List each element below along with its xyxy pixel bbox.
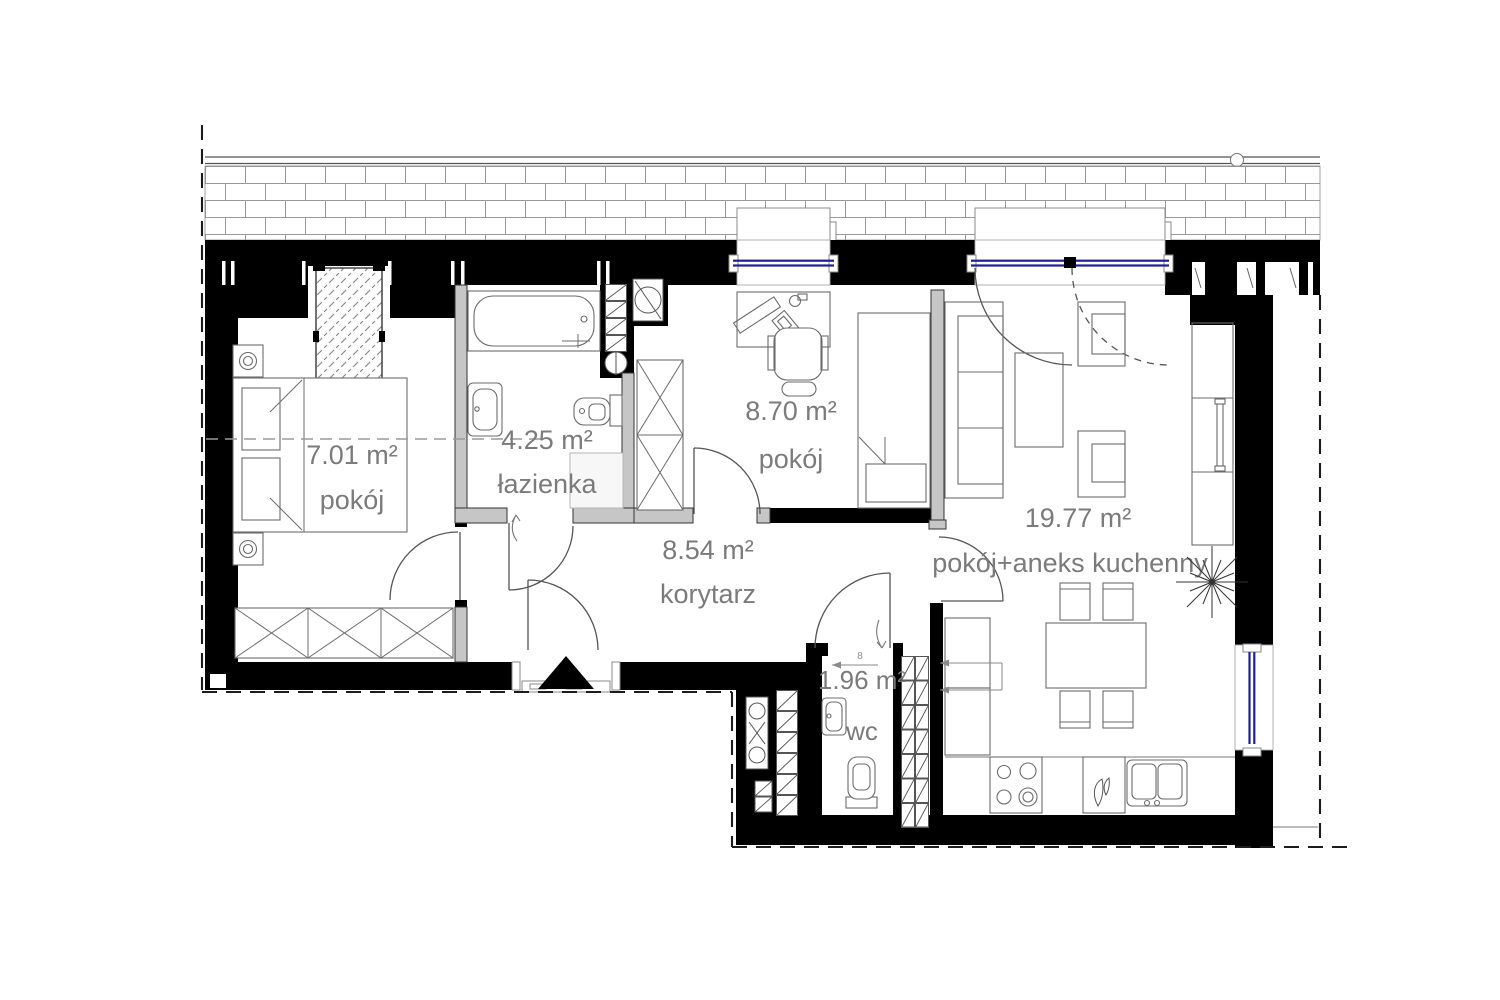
nightstand-icon <box>233 345 263 377</box>
floor-plan-page: 7.01 m² pokój 4.25 m² łazienka 8.70 m² p… <box>0 0 1500 1000</box>
tall-wardrobe-icon <box>637 360 683 510</box>
wall-kitchen-left <box>930 603 943 845</box>
survey-point-icon <box>1231 154 1244 167</box>
door-room2 <box>694 448 760 514</box>
window-kitchen <box>1235 644 1273 756</box>
shaft-grid-left <box>776 690 798 816</box>
wall-right-upper <box>1235 325 1273 645</box>
wc-washbasin-icon <box>822 698 846 735</box>
door-wc <box>815 573 890 648</box>
room1-name-label: pokój <box>320 485 385 515</box>
corridor-area-label: 8.54 m² <box>662 535 754 565</box>
window-sill-slab <box>975 208 1165 242</box>
wall-room2-bottom <box>770 508 935 523</box>
wall-bottom-mid <box>620 662 806 690</box>
flame-icon <box>1094 778 1109 806</box>
room2-name-label: pokój <box>759 444 824 474</box>
toilet-icon <box>574 395 622 426</box>
tall-cabinet-icon <box>1192 323 1233 545</box>
chair-icon <box>1060 691 1090 728</box>
chair-icon <box>1060 583 1090 620</box>
kitchen-sink-icon <box>1127 760 1187 806</box>
wall-top-mid <box>830 240 975 285</box>
armchair-icon <box>1078 302 1125 366</box>
chair-icon <box>1103 691 1133 728</box>
wall-bottom-right <box>736 815 1273 845</box>
wc-fixtures <box>822 698 877 808</box>
floor-plan-svg: 7.01 m² pokój 4.25 m² łazienka 8.70 m² p… <box>0 0 1500 1000</box>
partition-stub-room1 <box>455 607 467 662</box>
stove-icon <box>990 757 1042 813</box>
bath-area-label: 4.25 m² <box>501 425 593 455</box>
window-sill-slab <box>737 208 830 242</box>
office-chair-icon <box>768 328 828 396</box>
partition-room2-living <box>931 290 944 520</box>
chair-icon <box>1103 583 1133 620</box>
wall-top-bath <box>455 240 737 285</box>
dining-set <box>1046 583 1146 728</box>
shaft-grid-bath <box>605 284 627 352</box>
wardrobe-icon <box>235 608 453 658</box>
window-room2 <box>729 240 838 285</box>
wc-toilet-icon <box>846 757 877 808</box>
corridor-name-label: korytarz <box>660 579 756 609</box>
coffee-table-icon <box>1015 353 1063 447</box>
room2-area-label: 8.70 m² <box>745 396 837 426</box>
bathtub-icon <box>468 291 600 351</box>
sofa-icon <box>945 302 1003 498</box>
door-entrance <box>528 580 598 650</box>
living-name-label: pokój+aneks kuchenny <box>932 548 1208 578</box>
armchair-icon <box>1078 431 1125 497</box>
wc-area-label: 1.96 m² <box>818 665 906 695</box>
entrance <box>522 656 610 692</box>
partition-bath-right <box>622 373 634 508</box>
wc-name-label: wc <box>845 716 878 746</box>
door-room1 <box>390 532 460 600</box>
nightstand-icon <box>233 533 263 565</box>
wall-bottom-left <box>238 662 512 690</box>
bath-name-label: łazienka <box>497 469 597 499</box>
door-width-mark: 8 <box>857 651 863 662</box>
washing-machine-icon <box>633 279 663 321</box>
washbasin-icon <box>468 383 502 436</box>
entrance-marker-icon <box>538 656 594 689</box>
door-bathroom <box>509 515 573 590</box>
living-area-label: 19.77 m² <box>1025 503 1132 533</box>
exterior-envelope <box>205 154 1320 243</box>
single-bed-icon <box>858 313 930 508</box>
room1-area-label: 7.01 m² <box>306 440 398 470</box>
partition-room1-bath <box>455 285 467 518</box>
dining-table-icon <box>1046 623 1146 688</box>
